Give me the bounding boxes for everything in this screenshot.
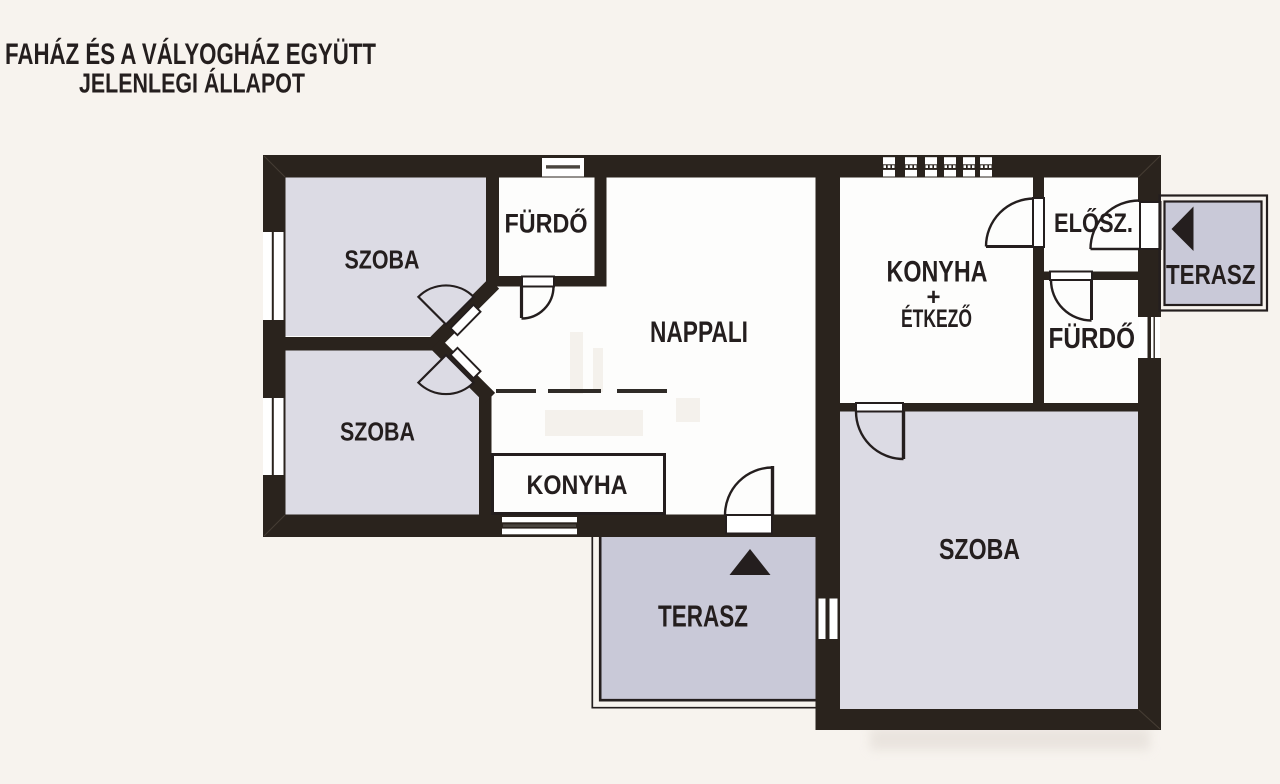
svg-text:NAPPALI: NAPPALI	[650, 316, 748, 349]
svg-text:FÜRDŐ: FÜRDŐ	[1049, 321, 1136, 355]
svg-text:TERASZ: TERASZ	[658, 599, 748, 634]
svg-text:FAHÁZ ÉS A VÁLYOGHÁZ EGYÜTT: FAHÁZ ÉS A VÁLYOGHÁZ EGYÜTT	[5, 37, 376, 71]
svg-text:SZOBA: SZOBA	[939, 534, 1020, 566]
svg-text:FÜRDŐ: FÜRDŐ	[505, 208, 588, 239]
svg-text:ÉTKEZŐ: ÉTKEZŐ	[901, 304, 972, 333]
svg-text:TERASZ: TERASZ	[1166, 259, 1256, 290]
svg-text:ELŐSZ.: ELŐSZ.	[1054, 207, 1133, 238]
svg-text:SZOBA: SZOBA	[345, 245, 420, 275]
svg-text:JELENLEGI ÁLLAPOT: JELENLEGI ÁLLAPOT	[79, 68, 305, 99]
svg-text:SZOBA: SZOBA	[340, 417, 415, 447]
svg-text:KONYHA: KONYHA	[527, 470, 628, 500]
